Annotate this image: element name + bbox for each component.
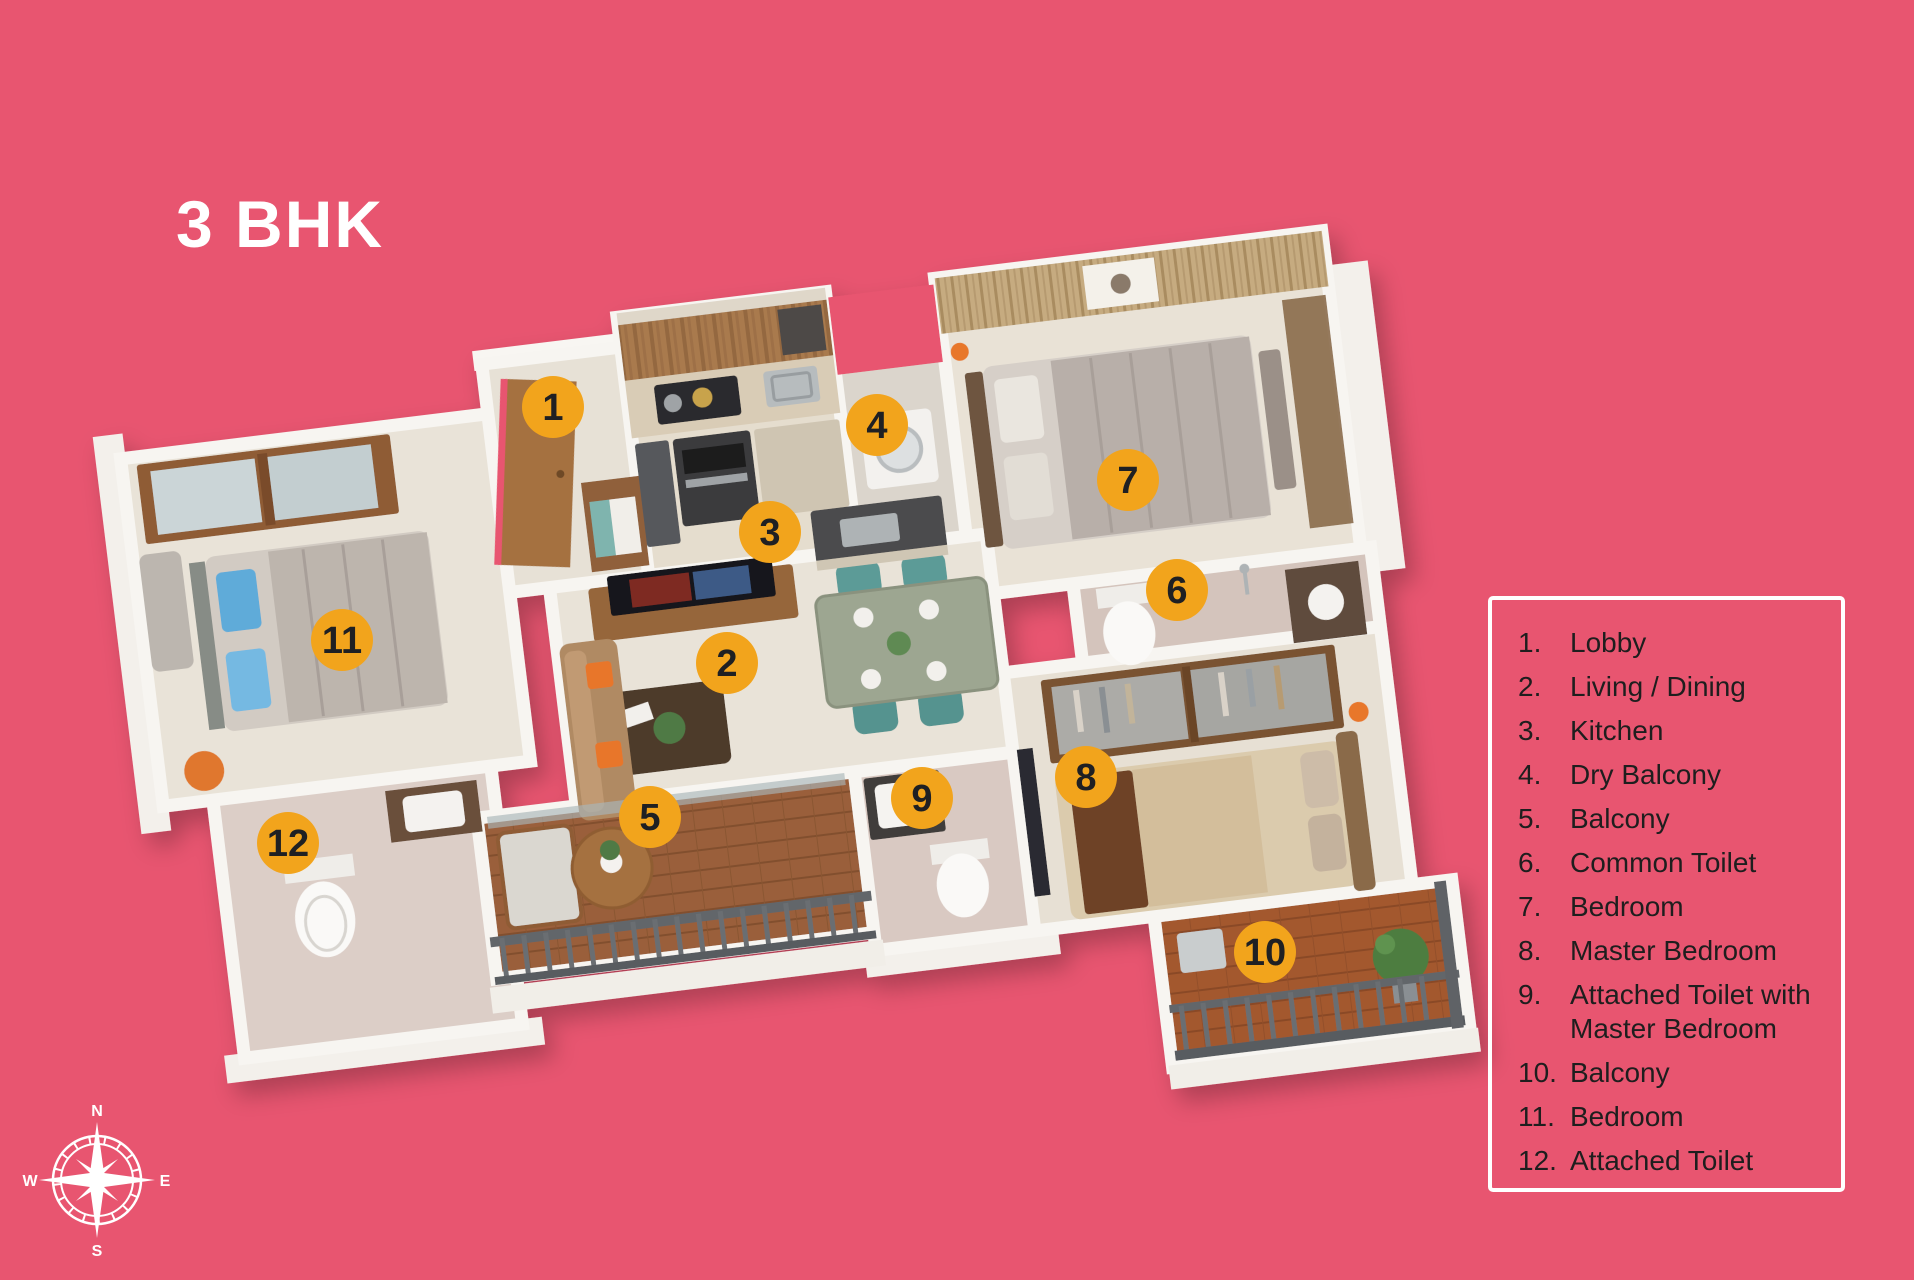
page-title: 3 BHK [176,186,384,262]
legend-item-label: Attached Toilet with Master Bedroom [1570,978,1828,1046]
marker-4: 4 [846,394,908,456]
legend-item: 6. Common Toilet [1518,846,1841,880]
legend-item-number: 2. [1518,670,1570,704]
marker-2: 2 [696,632,758,694]
legend-item-number: 8. [1518,934,1570,968]
legend-item-label: Kitchen [1570,714,1828,748]
marker-number: 4 [866,405,887,447]
legend-item: 2. Living / Dining [1518,670,1841,704]
compass-east-label: E [160,1173,171,1190]
marker-number: 3 [759,512,780,554]
legend-item-number: 5. [1518,802,1570,836]
poster: 1 2 3 4 5 6 7 8 [0,0,1914,1280]
compass-center [92,1175,102,1185]
apartment [86,220,1481,1211]
legend-item: 1. Lobby [1518,626,1841,660]
legend-item-number: 10. [1518,1056,1570,1090]
marker-1: 1 [522,376,584,438]
marker-number: 1 [542,387,563,429]
legend-item-label: Balcony [1570,802,1828,836]
legend-item: 4. Dry Balcony [1518,758,1841,792]
bed-blanket [1132,755,1268,907]
wardrobe-mirror [266,444,378,520]
dry-balcony-opening [828,285,943,375]
side-table [1176,928,1227,973]
lounge-chair [497,825,582,929]
legend-item-label: Master Bedroom [1570,934,1828,968]
legend-item: 10. Balcony [1518,1056,1841,1090]
marker-number: 11 [322,620,362,662]
marker-number: 7 [1117,460,1138,502]
pillow [1003,452,1054,521]
legend-item-number: 9. [1518,978,1570,1046]
legend-item-number: 3. [1518,714,1570,748]
legend-item-label: Lobby [1570,626,1828,660]
legend-item-number: 6. [1518,846,1570,880]
pillow-blue [215,568,262,632]
compass-west-label: W [22,1173,38,1190]
pillow-blue [225,648,272,712]
legend-item-label: Dry Balcony [1570,758,1828,792]
compass-rose: N E S W [22,1100,172,1260]
pillow [1299,749,1340,809]
washbasin [402,790,466,833]
marker-number: 6 [1166,570,1187,612]
marker-number: 9 [911,778,932,820]
microwave-niche [777,304,826,355]
marker-7: 7 [1097,449,1159,511]
cushion-orange [585,661,614,690]
legend: 1. Lobby 2. Living / Dining 3. Kitchen 4… [1488,596,1845,1192]
marker-6: 6 [1146,559,1208,621]
legend-item: 7. Bedroom [1518,890,1841,924]
legend-item-label: Bedroom [1570,1100,1828,1134]
compass-south-label: S [92,1243,103,1260]
legend-item: 8. Master Bedroom [1518,934,1841,968]
bed-duvet [1051,336,1271,539]
legend-item-number: 7. [1518,890,1570,924]
legend-item-number: 4. [1518,758,1570,792]
marker-5: 5 [619,786,681,848]
legend-item-number: 12. [1518,1144,1570,1178]
legend-item-label: Bedroom [1570,890,1828,924]
marker-number: 10 [1244,932,1286,974]
marker-12: 12 [257,812,319,874]
legend-item-number: 11. [1518,1100,1570,1134]
wardrobe-mirror [150,459,262,535]
legend-item: 5. Balcony [1518,802,1841,836]
marker-11: 11 [311,609,373,671]
cushion-orange [595,740,624,769]
marker-number: 2 [716,643,737,685]
marker-10: 10 [1234,921,1296,983]
compass-north-label: N [91,1103,103,1120]
legend-item-label: Balcony [1570,1056,1828,1090]
marker-9: 9 [891,767,953,829]
pillow [993,375,1044,444]
marker-number: 5 [639,797,660,839]
legend-item-label: Living / Dining [1570,670,1828,704]
legend-item: 9. Attached Toilet with Master Bedroom [1518,978,1841,1046]
marker-3: 3 [739,501,801,563]
pillow [1307,813,1348,873]
marker-8: 8 [1055,746,1117,808]
legend-item: 3. Kitchen [1518,714,1841,748]
marker-number: 8 [1075,757,1096,799]
legend-item-label: Attached Toilet [1570,1144,1828,1178]
marker-number: 12 [267,823,309,865]
legend-item-label: Common Toilet [1570,846,1828,880]
legend-item-number: 1. [1518,626,1570,660]
legend-item: 11. Bedroom [1518,1100,1841,1134]
legend-item: 12. Attached Toilet [1518,1144,1841,1178]
